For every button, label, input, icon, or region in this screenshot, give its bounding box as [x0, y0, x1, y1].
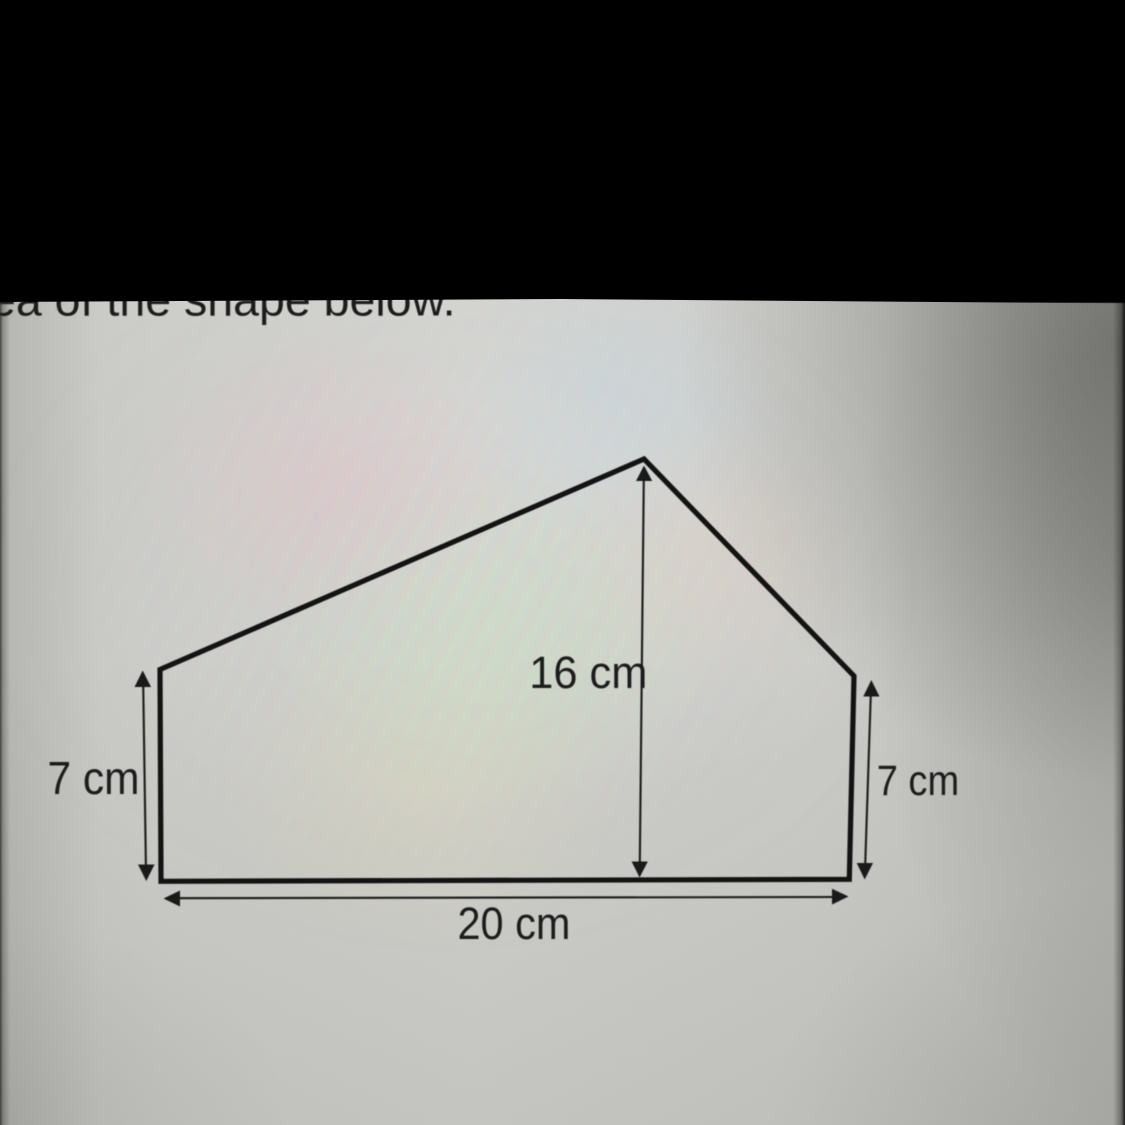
svg-text:7 cm: 7 cm: [48, 753, 140, 804]
svg-text:7 cm: 7 cm: [877, 756, 959, 805]
svg-text:20 cm: 20 cm: [458, 899, 571, 949]
svg-text:16 cm: 16 cm: [529, 648, 647, 698]
